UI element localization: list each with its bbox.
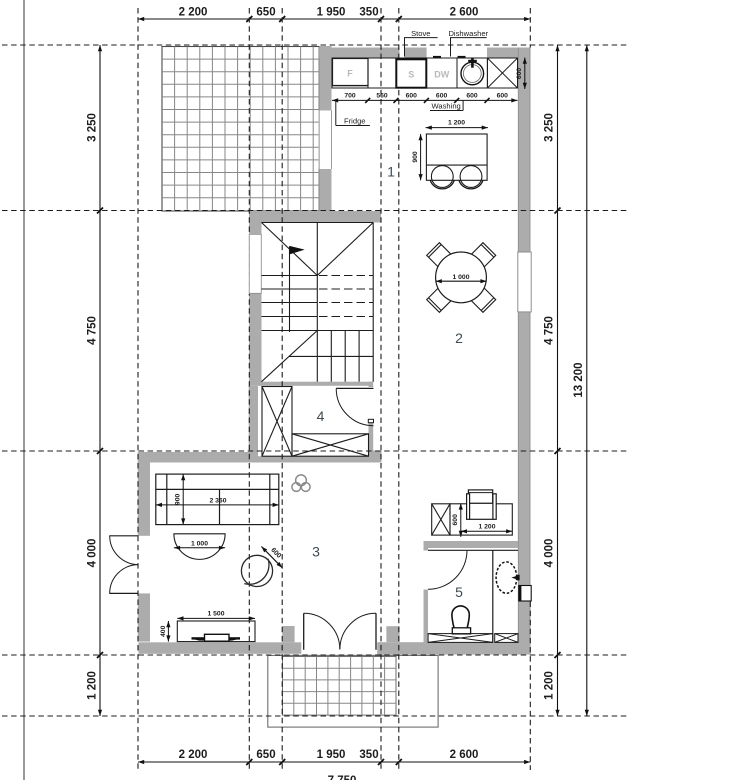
svg-text:400: 400: [160, 625, 167, 637]
svg-text:1 200: 1 200: [478, 524, 495, 531]
svg-text:4 750: 4 750: [87, 316, 99, 345]
svg-text:900: 900: [175, 494, 182, 506]
svg-text:560: 560: [376, 92, 388, 99]
svg-text:1 200: 1 200: [87, 671, 99, 700]
svg-text:650: 650: [256, 7, 275, 19]
svg-text:5: 5: [455, 584, 463, 600]
svg-text:Fridge: Fridge: [344, 117, 366, 126]
svg-text:900: 900: [412, 151, 419, 163]
svg-text:700: 700: [344, 92, 356, 99]
svg-text:1 200: 1 200: [544, 671, 556, 700]
svg-text:650: 650: [256, 749, 275, 761]
svg-text:1 950: 1 950: [317, 749, 346, 761]
svg-text:Washing: Washing: [432, 102, 461, 111]
svg-text:2: 2: [455, 330, 463, 346]
svg-text:1 200: 1 200: [448, 120, 465, 127]
svg-text:Dishwasher: Dishwasher: [448, 29, 488, 38]
svg-text:4 000: 4 000: [544, 539, 556, 568]
svg-text:2 600: 2 600: [450, 749, 479, 761]
svg-text:4: 4: [317, 408, 325, 424]
svg-text:7 750: 7 750: [328, 775, 357, 780]
svg-text:2 360: 2 360: [209, 497, 226, 504]
svg-text:3 250: 3 250: [544, 113, 556, 142]
svg-text:1 950: 1 950: [317, 7, 346, 19]
svg-text:4 750: 4 750: [544, 316, 556, 345]
svg-text:600: 600: [516, 68, 523, 80]
svg-text:1 500: 1 500: [207, 610, 224, 617]
svg-text:3: 3: [312, 544, 320, 560]
svg-text:1: 1: [387, 164, 395, 180]
svg-text:F: F: [347, 69, 353, 79]
svg-text:13 200: 13 200: [573, 362, 585, 397]
svg-text:600: 600: [466, 92, 478, 99]
svg-text:600: 600: [436, 92, 448, 99]
svg-text:Stove: Stove: [411, 29, 430, 38]
svg-text:DW: DW: [434, 70, 449, 80]
svg-text:2 600: 2 600: [450, 7, 479, 19]
svg-text:2 200: 2 200: [179, 749, 208, 761]
svg-text:600: 600: [452, 514, 459, 526]
svg-text:3 250: 3 250: [87, 113, 99, 142]
svg-text:2 200: 2 200: [179, 7, 208, 19]
svg-text:350: 350: [359, 749, 378, 761]
svg-text:1 000: 1 000: [452, 274, 469, 281]
svg-text:600: 600: [497, 92, 509, 99]
svg-text:4 000: 4 000: [87, 539, 99, 568]
svg-text:600: 600: [406, 92, 418, 99]
svg-text:1 000: 1 000: [191, 540, 208, 547]
svg-text:350: 350: [359, 7, 378, 19]
svg-text:S: S: [408, 70, 414, 80]
